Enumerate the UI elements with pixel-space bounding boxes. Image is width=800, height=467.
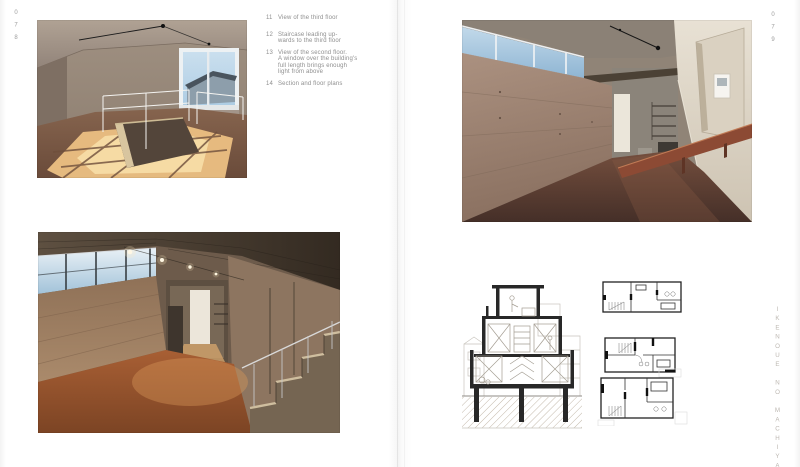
floor-plans-graphic — [596, 276, 688, 426]
caption-text: light from above — [278, 69, 396, 76]
third-floor-photo-graphic — [37, 20, 247, 178]
floor-plan-3f — [603, 282, 681, 312]
caption-text: Section and floor plans — [278, 81, 396, 88]
section-drawing-graphic — [462, 278, 582, 436]
photo-second-floor — [462, 20, 752, 222]
caption-number: 13 — [266, 50, 278, 76]
book-spread: 078 — [0, 0, 800, 467]
project-title-vertical: IKENOUE NO MACHIYA — [774, 306, 781, 467]
staircase-photo-graphic — [38, 232, 340, 433]
caption-number: 12 — [266, 32, 278, 45]
gutter-line-left — [397, 0, 398, 467]
caption-number: 11 — [266, 15, 278, 22]
caption-list: 11 View of the third floor 12 Staircase … — [266, 15, 396, 92]
caption-text: View of the third floor — [278, 15, 396, 22]
floor-plan-2f — [605, 338, 675, 372]
floor-plans — [596, 276, 688, 426]
floor-plan-1f — [598, 369, 687, 426]
page-number-right: 079 — [770, 12, 776, 50]
caption-11: 11 View of the third floor — [266, 15, 396, 22]
page-edge-left — [0, 0, 6, 467]
gutter-line-right — [404, 0, 405, 467]
caption-number: 14 — [266, 81, 278, 88]
caption-14: 14 Section and floor plans — [266, 81, 396, 88]
page-edge-right — [794, 0, 800, 467]
back-corridor — [166, 280, 228, 364]
caption-12: 12 Staircase leading up- wards to the th… — [266, 32, 396, 45]
caption-13: 13 View of the second floor. A window ov… — [266, 50, 396, 76]
page-gutter — [388, 0, 412, 467]
page-number-left: 078 — [13, 10, 19, 48]
second-floor-photo-graphic — [462, 20, 752, 222]
photo-third-floor — [37, 20, 247, 178]
interior-lines — [476, 296, 568, 384]
photo-staircase — [38, 232, 340, 433]
section-drawing — [462, 278, 582, 436]
caption-text: wards to the third floor — [278, 38, 396, 45]
